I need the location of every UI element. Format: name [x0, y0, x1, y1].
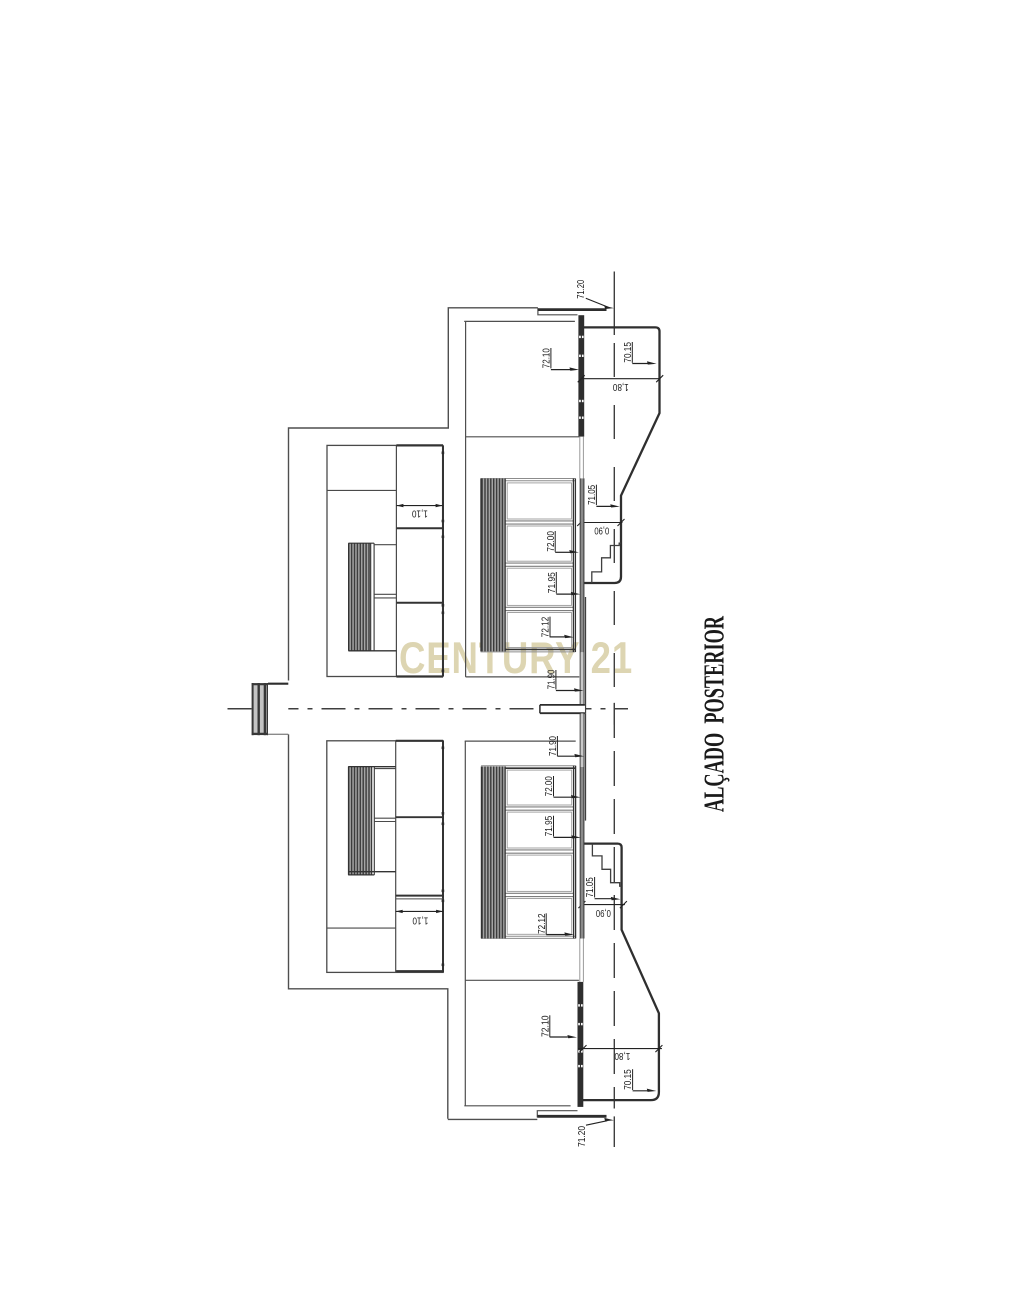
svg-text:71.20: 71.20: [575, 280, 587, 299]
svg-text:ALÇADO POSTERIOR: ALÇADO POSTERIOR: [700, 615, 731, 812]
svg-text:0,90: 0,90: [596, 907, 611, 919]
svg-text:1,80: 1,80: [614, 1050, 630, 1062]
svg-text:1,80: 1,80: [613, 381, 629, 393]
svg-text:71.20: 71.20: [576, 1126, 588, 1147]
svg-text:1,10: 1,10: [412, 507, 428, 519]
svg-text:1,10: 1,10: [412, 914, 428, 926]
svg-text:0,90: 0,90: [594, 525, 609, 537]
